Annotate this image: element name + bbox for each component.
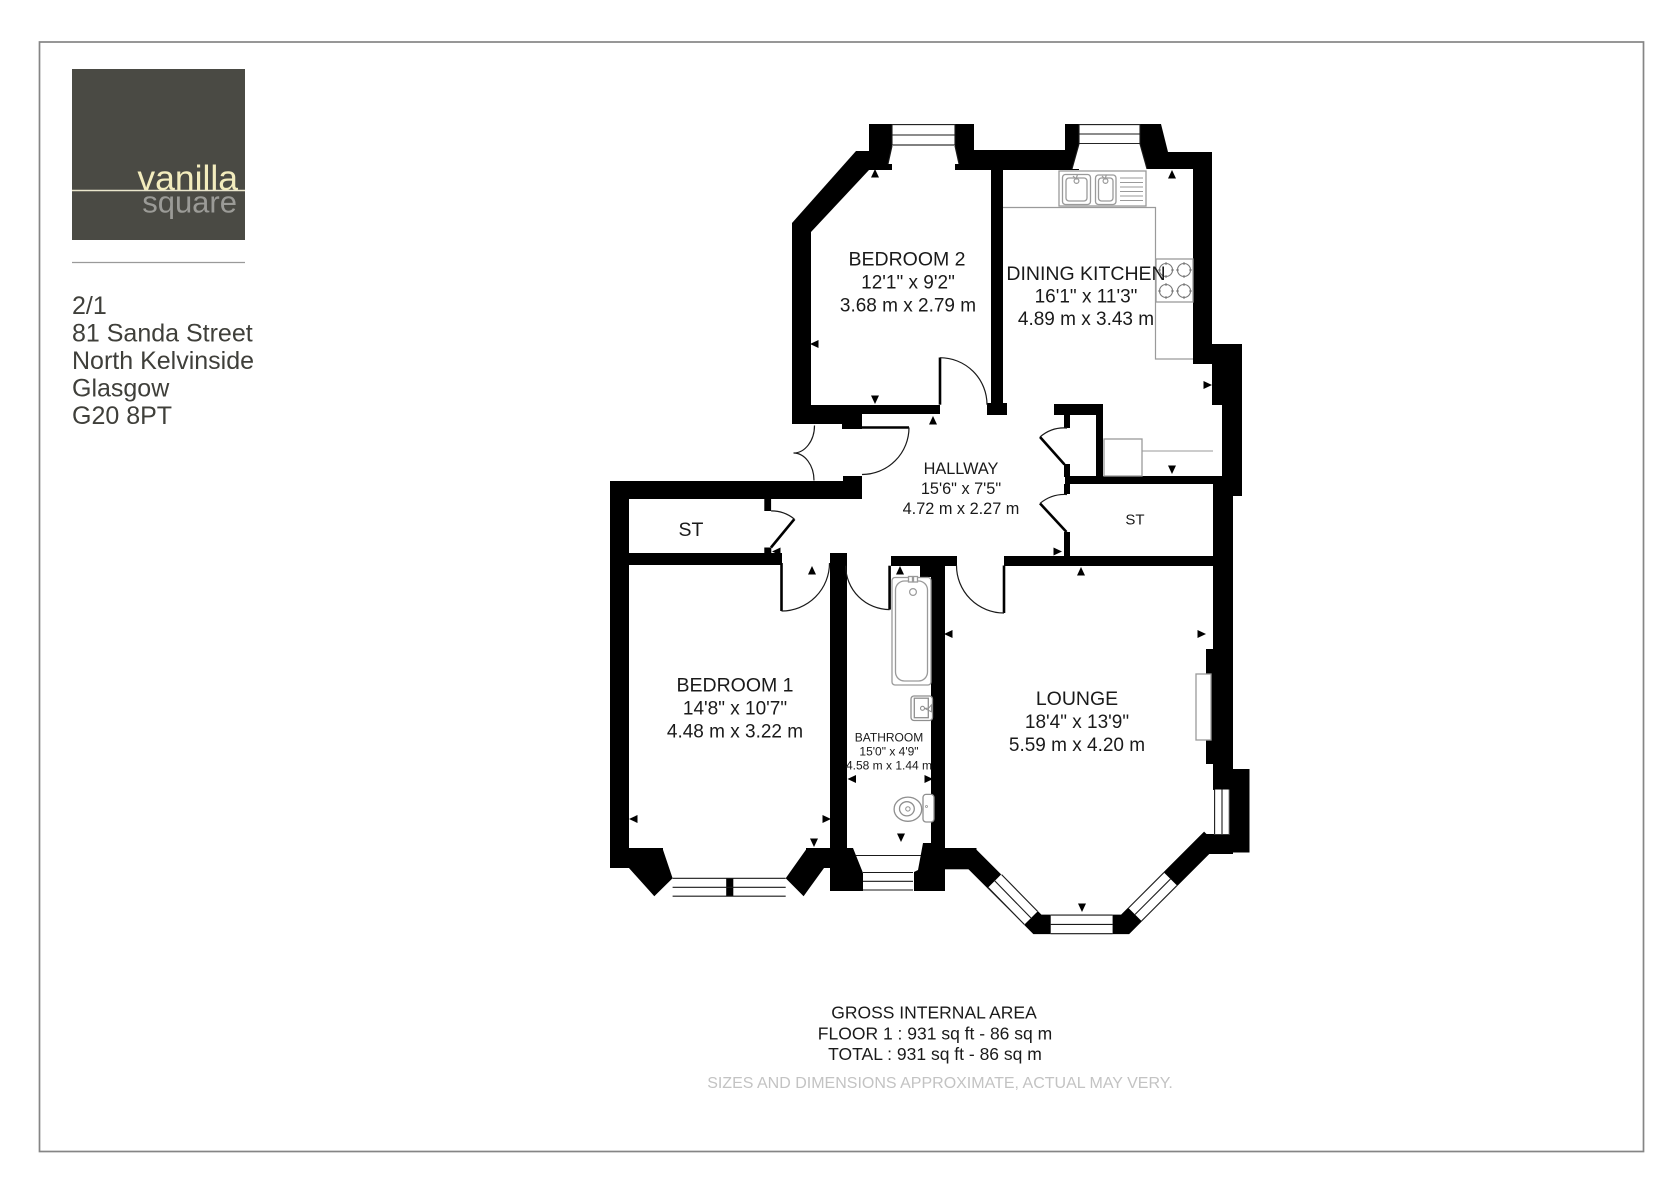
svg-text:FLOOR 1 : 931 sq ft - 86 sq m: FLOOR 1 : 931 sq ft - 86 sq m xyxy=(818,1024,1052,1044)
svg-text:Glasgow: Glasgow xyxy=(72,375,170,403)
svg-text:3.68 m x 2.79 m: 3.68 m x 2.79 m xyxy=(840,296,976,317)
svg-text:16'1" x 11'3": 16'1" x 11'3" xyxy=(1035,287,1138,308)
svg-text:vanilla: vanilla xyxy=(137,158,238,198)
svg-text:ST: ST xyxy=(1125,512,1144,529)
svg-text:4.58 m x 1.44 m: 4.58 m x 1.44 m xyxy=(846,759,932,773)
svg-text:4.89 m x 3.43 m: 4.89 m x 3.43 m xyxy=(1018,309,1154,330)
svg-text:2/1: 2/1 xyxy=(72,292,107,320)
svg-text:BEDROOM 2: BEDROOM 2 xyxy=(848,249,965,271)
svg-text:G20 8PT: G20 8PT xyxy=(72,402,172,430)
svg-text:81 Sanda Street: 81 Sanda Street xyxy=(72,320,253,348)
svg-text:5.59 m x 4.20 m: 5.59 m x 4.20 m xyxy=(1009,735,1145,756)
svg-text:15'0" x 4'9": 15'0" x 4'9" xyxy=(859,745,918,759)
svg-text:ST: ST xyxy=(679,519,704,541)
svg-text:TOTAL : 931 sq ft - 86 sq m: TOTAL : 931 sq ft - 86 sq m xyxy=(828,1044,1042,1064)
svg-text:North Kelvinside: North Kelvinside xyxy=(72,347,254,375)
svg-text:14'8" x 10'7": 14'8" x 10'7" xyxy=(683,699,787,720)
svg-text:LOUNGE: LOUNGE xyxy=(1036,688,1118,710)
svg-text:18'4" x 13'9": 18'4" x 13'9" xyxy=(1025,712,1129,733)
svg-text:SIZES AND DIMENSIONS APPROXIMA: SIZES AND DIMENSIONS APPROXIMATE, ACTUAL… xyxy=(707,1075,1173,1092)
svg-text:4.72 m x 2.27 m: 4.72 m x 2.27 m xyxy=(903,500,1020,518)
svg-text:4.48 m x 3.22 m: 4.48 m x 3.22 m xyxy=(667,722,803,743)
svg-text:HALLWAY: HALLWAY xyxy=(924,460,999,478)
svg-text:GROSS INTERNAL AREA: GROSS INTERNAL AREA xyxy=(831,1003,1037,1023)
svg-text:12'1" x 9'2": 12'1" x 9'2" xyxy=(861,273,955,294)
svg-text:BATHROOM: BATHROOM xyxy=(855,731,923,745)
svg-text:DINING KITCHEN: DINING KITCHEN xyxy=(1006,263,1165,285)
svg-text:BEDROOM 1: BEDROOM 1 xyxy=(676,675,793,697)
svg-text:15'6" x 7'5": 15'6" x 7'5" xyxy=(921,480,1001,498)
